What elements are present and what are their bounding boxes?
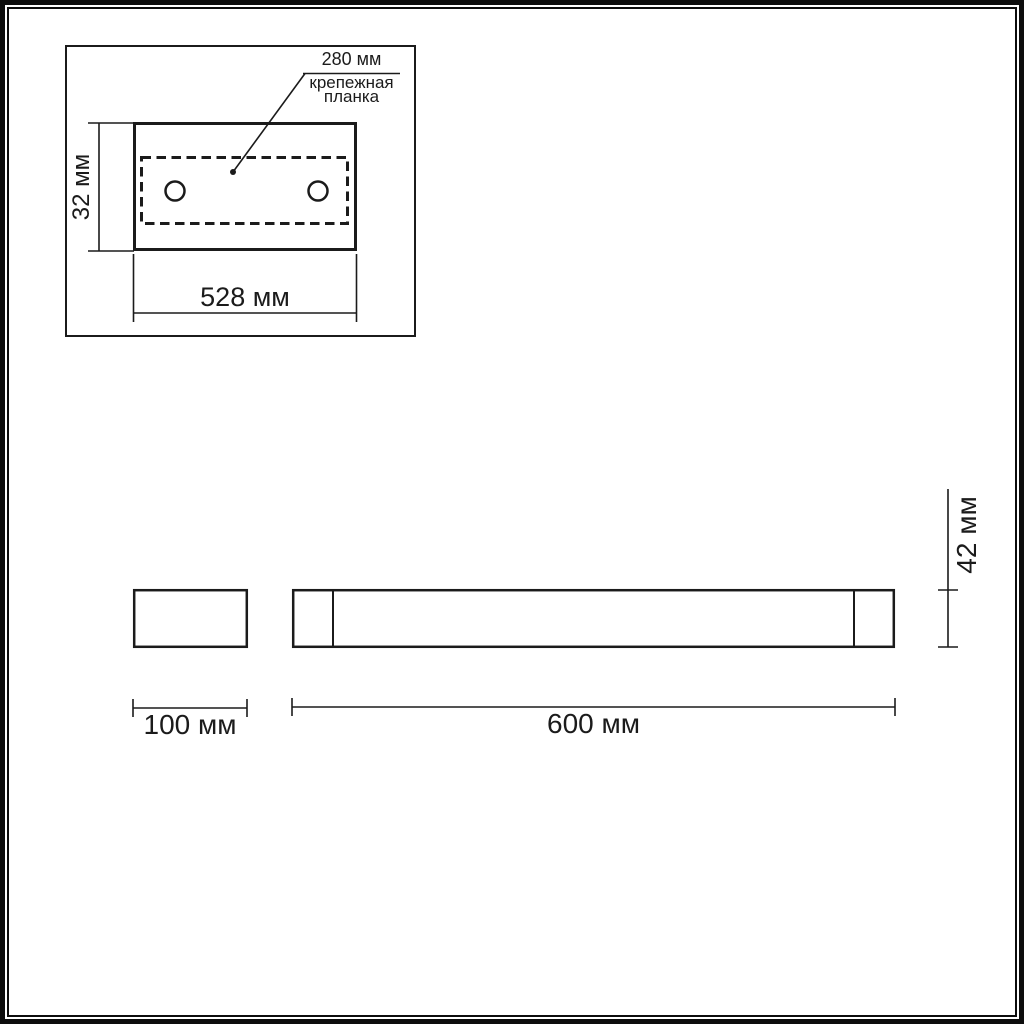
mounting-hole-left [166, 182, 185, 201]
mounting-bracket-dashed-outline [142, 158, 348, 224]
fixture-height-dim-label: 42 мм [951, 496, 983, 573]
plate-height-dim-label: 32 мм [68, 154, 96, 220]
mounting-bracket-name-label: крепежная планка [303, 76, 400, 104]
fixture-length-dim-label: 600 мм [292, 710, 895, 738]
side-depth-dim-label: 100 мм [133, 711, 247, 739]
side-view-outline [134, 590, 247, 647]
drawing-linework [0, 0, 1024, 1024]
technical-drawing-canvas: 280 мм крепежная планка 32 мм 528 мм 42 … [0, 0, 1024, 1024]
bracket-length-dim-label: 280 мм [303, 49, 400, 69]
front-view-outline [293, 590, 894, 647]
mounting-hole-right [309, 182, 328, 201]
plate-width-dim-label: 528 мм [133, 284, 357, 311]
